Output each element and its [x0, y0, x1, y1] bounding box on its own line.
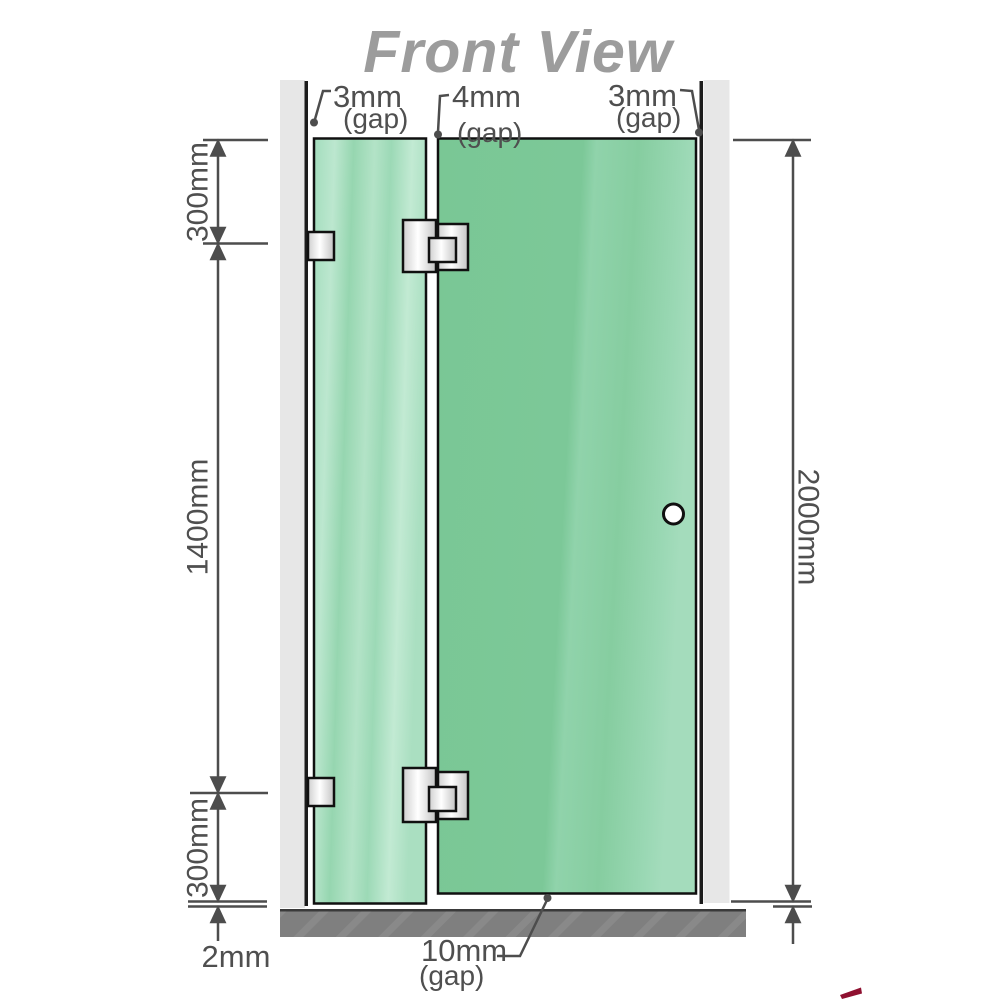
gap-label-top-center-unit: (gap): [457, 117, 522, 148]
leader-dot-bottom: [544, 894, 552, 902]
right-wall-channel: [704, 80, 730, 903]
logo-fragment: [840, 988, 862, 1000]
wall-bracket-bottom: [308, 778, 334, 806]
floor-top-edge: [280, 909, 746, 912]
dim-label-bottom-left: 300mm: [182, 798, 215, 898]
left-wall-channel: [280, 80, 305, 908]
door-glass-panel: [438, 139, 696, 894]
leader-dot-right: [695, 129, 703, 137]
hinge-top: [403, 220, 468, 272]
gap-label-top-center-value: 4mm: [452, 79, 521, 114]
hinge-bottom: [403, 768, 468, 822]
wall-bracket-top: [308, 232, 334, 260]
door-knob: [664, 504, 684, 524]
gap-label-top-left-unit: (gap): [343, 103, 408, 134]
hinge-top-clamp-tab: [429, 238, 456, 262]
dim-label-top-left: 300mm: [182, 142, 215, 242]
floor-base: [280, 909, 746, 937]
gap-label-bottom-unit: (gap): [419, 960, 484, 991]
leader-dot-left: [310, 119, 318, 127]
leader-dot-center: [434, 131, 442, 139]
dim-label-floor-gap: 2mm: [202, 939, 271, 974]
hinge-bottom-clamp-tab: [429, 787, 456, 811]
diagram-canvas: Front View: [0, 0, 1000, 1000]
diagram-title: Front View: [363, 19, 675, 85]
dim-label-middle-left: 1400mm: [182, 459, 215, 576]
right-wall-channel-edge: [700, 81, 704, 904]
front-view-diagram: Front View: [0, 0, 1000, 1000]
gap-label-top-right-unit: (gap): [616, 102, 681, 133]
dim-label-right-total: 2000mm: [792, 469, 825, 586]
